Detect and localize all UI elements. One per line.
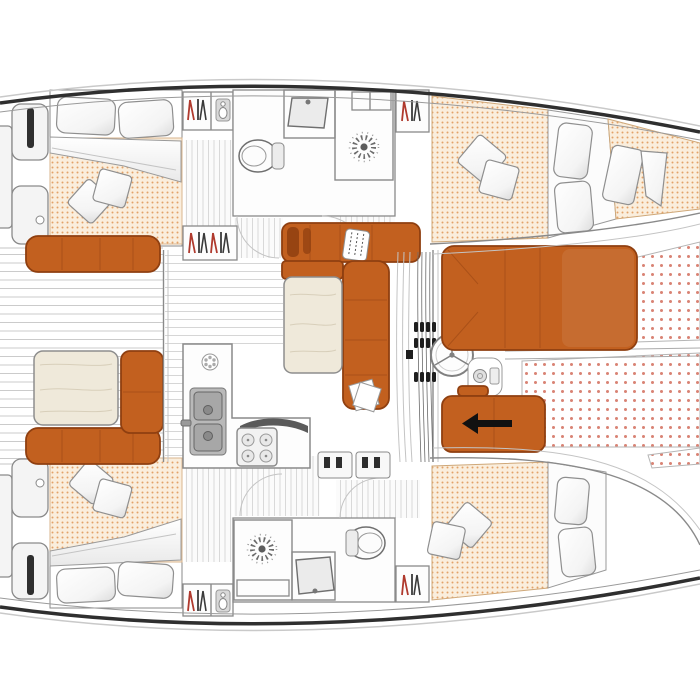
pillow <box>553 122 593 180</box>
toilet-icon <box>239 140 277 172</box>
cushion <box>427 521 466 560</box>
stbd-fwd-corridor-slats <box>336 480 420 518</box>
toilet-lid-hinge <box>272 143 284 169</box>
pillow <box>554 181 594 234</box>
pillow <box>558 526 597 577</box>
companionway-steps <box>318 452 390 478</box>
bench-headrest <box>458 386 488 396</box>
stbd-aft-cabin <box>50 458 182 608</box>
stbd-deck-cleat <box>36 479 44 487</box>
port-deck-cleat <box>36 216 44 224</box>
water-heater-icon <box>216 99 230 121</box>
stove-icon <box>237 428 277 466</box>
stbd-hull-steps-slats <box>185 462 232 562</box>
stbd-transom-step <box>12 459 48 517</box>
shower-shelf <box>352 92 391 110</box>
trampoline-upper-net <box>634 242 700 342</box>
pillow <box>117 561 174 599</box>
striped-cushion <box>342 228 370 261</box>
water-heater-icon <box>216 590 230 612</box>
sunpad-quilted-section <box>562 249 634 347</box>
faucet-icon <box>306 100 311 105</box>
port-davit-bar <box>27 108 34 148</box>
stbd-swim-platform <box>0 475 12 577</box>
toilet-lid-hinge <box>346 530 358 556</box>
port-aft-cabin <box>50 90 182 246</box>
port-corridor-slats <box>234 218 283 258</box>
sofa-armrest <box>303 228 311 254</box>
trampoline-main-net <box>522 353 700 447</box>
faucet-icon <box>313 589 318 594</box>
sofa-armrest <box>287 227 299 257</box>
port-hull-steps-slats <box>185 140 232 240</box>
saloon-floor <box>165 252 283 344</box>
hanging-locker <box>183 226 237 260</box>
hob-control-dial <box>202 354 218 370</box>
screenshot-canvas <box>0 0 700 700</box>
cleat-icon <box>490 368 499 384</box>
cockpit-bench <box>26 236 160 272</box>
pillow <box>118 99 174 139</box>
galley-faucet-icon <box>181 420 191 426</box>
stbd-davit-bar <box>27 555 34 595</box>
cockpit-table <box>34 351 118 425</box>
shower-shelf <box>237 580 289 596</box>
winch-icon <box>474 370 487 383</box>
boat-deck-plan <box>0 0 700 700</box>
washbasin-icon <box>296 557 334 594</box>
pillow <box>56 567 116 604</box>
pillow <box>554 477 590 526</box>
port-swim-platform <box>0 126 12 228</box>
trampoline-lower-strip <box>648 448 700 468</box>
stbd-fwd-cabin <box>427 462 606 600</box>
